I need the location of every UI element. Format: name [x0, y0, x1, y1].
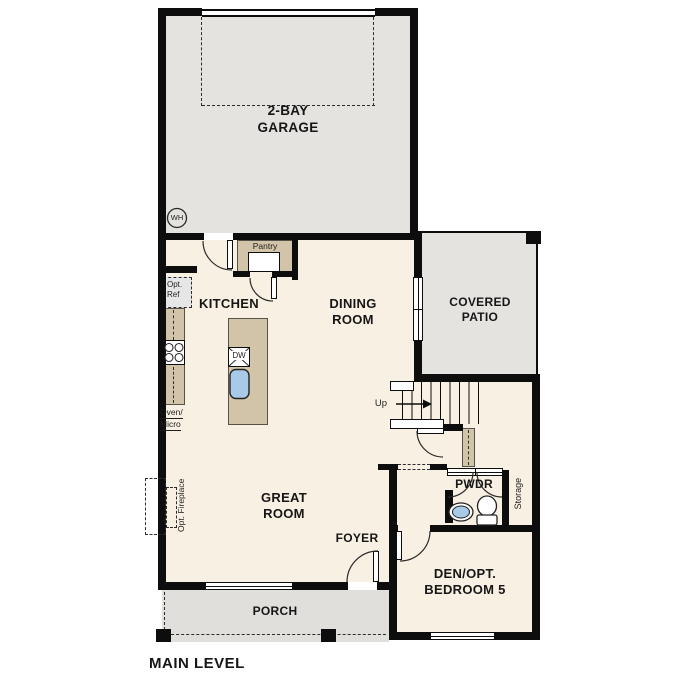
plan-title: MAIN LEVEL — [149, 655, 309, 674]
covered-patio-label: COVEREDPATIO — [425, 295, 535, 325]
garage-right-wall — [410, 8, 418, 235]
floor-plan: 2-BAYGARAGE KITCHEN DININGROOM COVEREDPA… — [0, 0, 687, 687]
dining-right-wall — [414, 233, 422, 277]
understair-door-leaf — [417, 428, 444, 434]
pwdr-label: PWDR — [446, 477, 502, 492]
water-heater-label: WH — [167, 213, 187, 222]
great-room-label: GREATROOM — [234, 490, 334, 523]
storage-label: Storage — [513, 463, 524, 524]
counter-edge-dashed — [173, 310, 174, 340]
cased-opening-dashed — [398, 464, 430, 470]
opt-fireplace-outline — [145, 478, 166, 535]
understair-wall — [443, 424, 463, 431]
opt-fireplace-label: Opt. Fireplace — [176, 475, 187, 536]
south-wall — [158, 582, 206, 590]
hall-wall — [430, 464, 447, 470]
den-south-wall — [494, 632, 540, 640]
pwdr-left-wall — [445, 490, 453, 523]
den-door-leaf — [396, 531, 402, 560]
garage-bay-dashed-left — [201, 17, 203, 106]
pwdr-right-wall — [502, 470, 509, 527]
garage-door — [202, 9, 375, 17]
garage-bay-dashed-right — [373, 17, 375, 106]
hall-cabinet-dashed — [468, 430, 469, 465]
stair-top-wall — [414, 374, 540, 382]
dishwasher-label: DW — [228, 351, 250, 361]
opt-ref-label: Opt.Ref — [167, 280, 191, 300]
kitchen-island — [228, 318, 268, 425]
pwdr-double-door-head — [447, 468, 503, 476]
front-door-leaf — [373, 551, 379, 582]
pantry-interior — [248, 252, 280, 272]
den-label: DEN/OPT.BEDROOM 5 — [394, 566, 536, 599]
dining-window — [413, 277, 423, 341]
garage-label: 2-BAYGARAGE — [218, 103, 358, 137]
den-south-wall — [389, 632, 431, 640]
exterior-wall-right — [532, 374, 540, 640]
kitchen-label: KITCHEN — [179, 296, 279, 312]
counter-edge-dashed — [173, 367, 174, 403]
porch-pillar — [321, 629, 336, 642]
fridge-nook-wall — [166, 266, 197, 273]
south-wall — [292, 582, 348, 590]
garage-bottom-wall — [233, 233, 418, 240]
garage-entry-door-leaf — [227, 240, 233, 269]
patio-edge-top — [418, 231, 540, 233]
foyer-label: FOYER — [321, 531, 393, 546]
pwdr-den-wall — [430, 525, 540, 532]
oven-micro-label: Oven/ Micro — [160, 407, 194, 431]
porch-label: PORCH — [230, 604, 320, 619]
porch-dashed-edge-bottom — [166, 634, 386, 636]
stairs-up-label: Up — [369, 398, 387, 410]
pantry-bottom-wall — [233, 271, 250, 277]
patio-edge-right — [536, 233, 538, 376]
dining-room-label: DININGROOM — [303, 296, 403, 329]
porch-pillar — [156, 629, 171, 642]
garage-bottom-wall — [158, 233, 204, 240]
stair-rail-top — [390, 381, 414, 391]
patio-pillar — [526, 231, 541, 244]
great-room-window — [205, 582, 293, 590]
pantry-label: Pantry — [242, 241, 288, 252]
den-window — [430, 632, 495, 640]
